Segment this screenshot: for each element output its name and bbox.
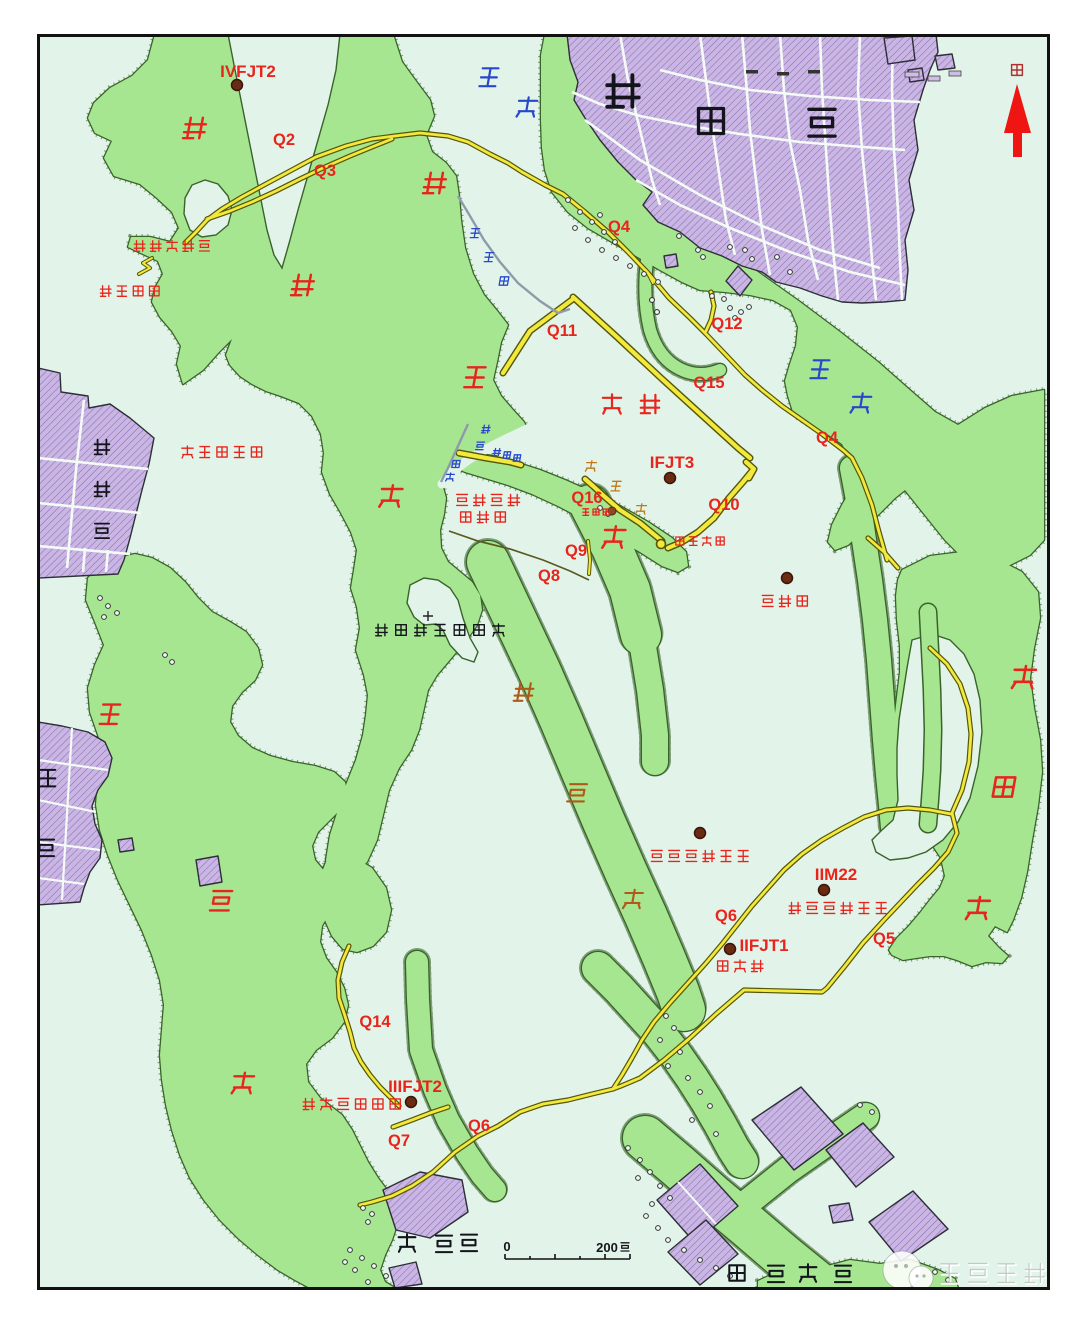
- svg-text:Q14: Q14: [359, 1013, 391, 1031]
- svg-text:200: 200: [596, 1240, 618, 1255]
- svg-text:Q4: Q4: [608, 218, 631, 236]
- svg-text:Q9: Q9: [565, 542, 587, 560]
- svg-text:Q16: Q16: [571, 489, 602, 507]
- svg-text:Q6: Q6: [715, 907, 737, 925]
- svg-text:IFJT3: IFJT3: [650, 453, 694, 472]
- svg-text:0: 0: [503, 1239, 510, 1254]
- svg-text:IVFJT2: IVFJT2: [220, 62, 276, 81]
- svg-text:Q7: Q7: [388, 1132, 410, 1150]
- svg-text:IIFJT1: IIFJT1: [739, 936, 788, 955]
- svg-text:Q10: Q10: [708, 496, 739, 514]
- svg-text:IIM22: IIM22: [815, 865, 858, 884]
- svg-text:Q5: Q5: [873, 930, 895, 948]
- svg-text:Q12: Q12: [711, 315, 742, 333]
- svg-text:Q8: Q8: [538, 567, 560, 585]
- svg-text:IIIFJT2: IIIFJT2: [388, 1077, 442, 1096]
- svg-text:Q15: Q15: [693, 374, 724, 392]
- svg-text:Q6: Q6: [468, 1117, 490, 1135]
- svg-text:Q3: Q3: [314, 162, 336, 180]
- svg-text:Q4: Q4: [816, 429, 839, 447]
- svg-text:Q2: Q2: [273, 131, 295, 149]
- svg-text:Q11: Q11: [547, 322, 577, 340]
